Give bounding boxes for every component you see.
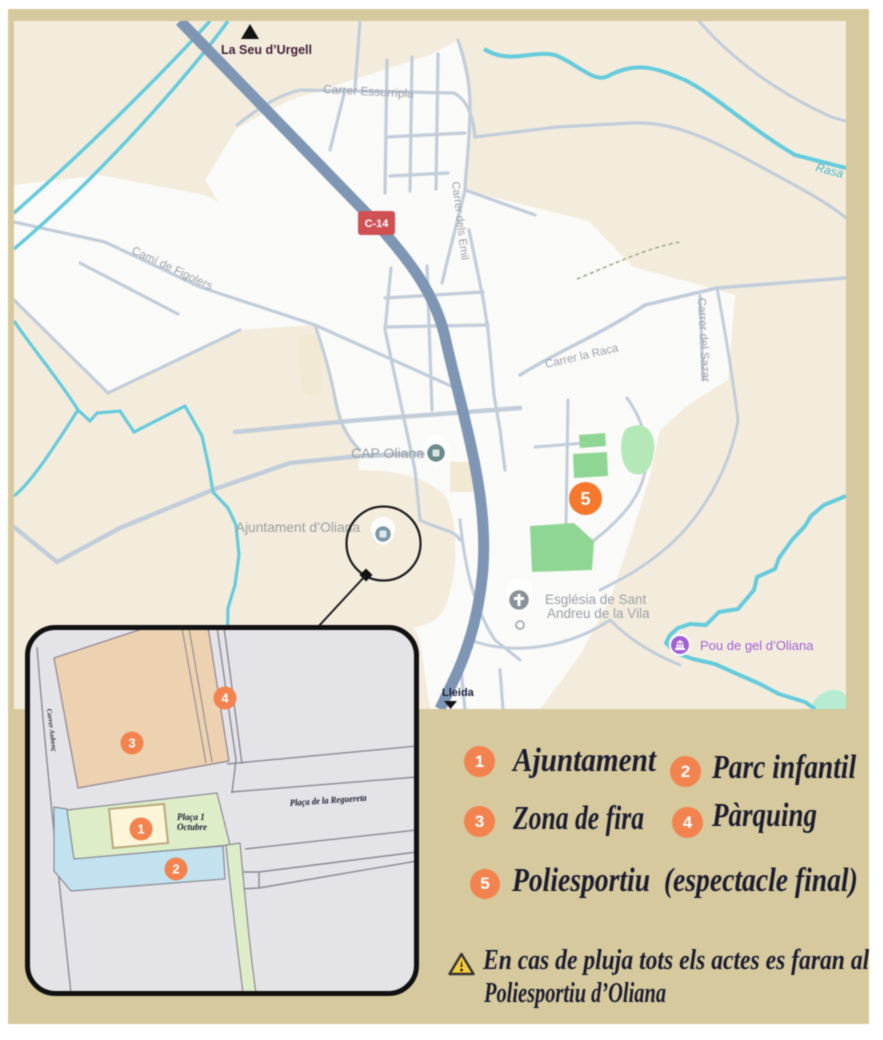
svg-text:4: 4	[221, 691, 229, 706]
svg-text:3: 3	[128, 736, 135, 751]
svg-text:5: 5	[580, 489, 590, 509]
svg-text:Andreu de la Vila: Andreu de la Vila	[547, 606, 650, 621]
svg-text:La Seu d’Urgell: La Seu d’Urgell	[221, 43, 312, 57]
svg-text:1: 1	[137, 822, 144, 837]
svg-text:Pou de gel d’Oliana: Pou de gel d’Oliana	[700, 638, 814, 653]
svg-text:Lleida: Lleida	[442, 687, 475, 699]
svg-text:Ajuntament d’Oliana: Ajuntament d’Oliana	[236, 520, 361, 535]
svg-text:Plaça 1: Plaça 1	[177, 812, 205, 822]
svg-text:CAP Oliana: CAP Oliana	[351, 445, 424, 461]
svg-text:Octubre: Octubre	[177, 822, 207, 832]
svg-text:C-14: C-14	[365, 218, 390, 230]
svg-text:Església de Sant: Església de Sant	[545, 592, 647, 607]
svg-text:2: 2	[172, 862, 179, 877]
